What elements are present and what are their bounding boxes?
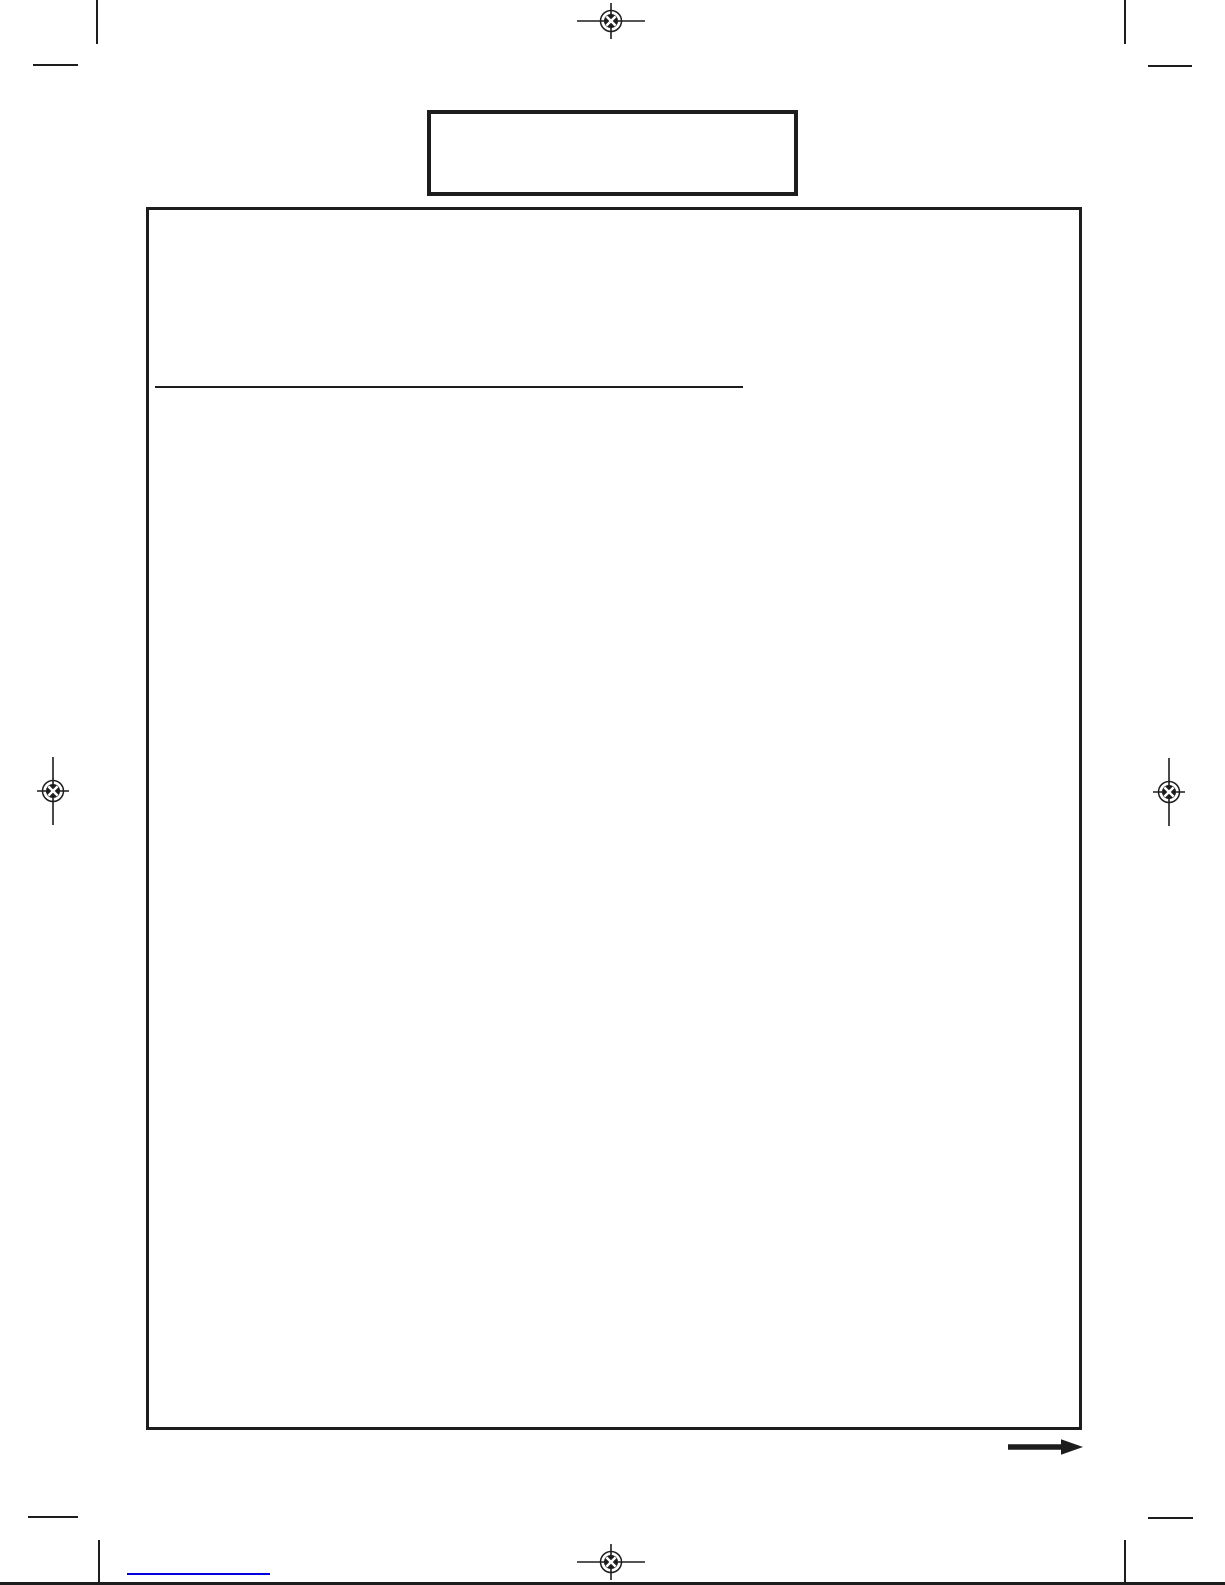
horizontal-rule — [155, 386, 743, 388]
content-frame — [146, 207, 1082, 1430]
crop-mark-bottom-left-horizontal-icon — [28, 1516, 78, 1518]
registration-mark-left-icon — [17, 755, 89, 827]
hyperlink-underline[interactable] — [127, 1573, 270, 1575]
header-box — [427, 110, 798, 196]
crop-mark-bottom-right-vertical-icon — [1124, 1540, 1126, 1585]
crop-mark-top-right-vertical-icon — [1124, 0, 1126, 44]
registration-mark-right-icon — [1133, 756, 1205, 828]
right-arrow-icon — [1008, 1437, 1084, 1457]
crop-mark-top-right-horizontal-icon — [1148, 65, 1192, 67]
crop-mark-bottom-right-horizontal-icon — [1148, 1517, 1193, 1519]
crop-mark-bottom-left-vertical-icon — [98, 1540, 100, 1585]
crop-mark-top-left-horizontal-icon — [33, 64, 78, 66]
page-canvas — [0, 0, 1225, 1585]
registration-mark-bottom-icon — [575, 1526, 647, 1585]
registration-mark-top-icon — [575, 0, 647, 57]
crop-mark-top-left-vertical-icon — [96, 0, 98, 44]
